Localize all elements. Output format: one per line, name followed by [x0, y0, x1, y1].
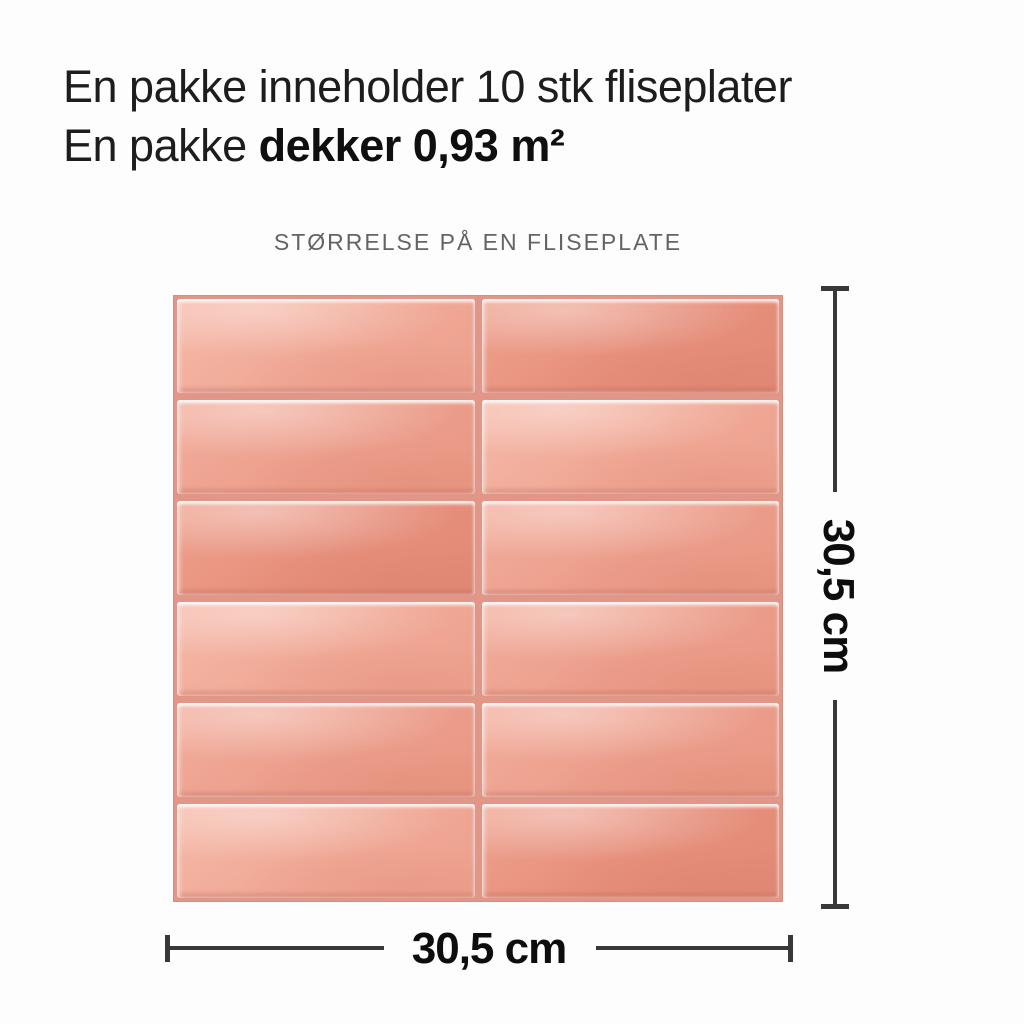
height-dimension-label: 30,5 cm: [813, 519, 863, 673]
heading-line-1: En pakke inneholder 10 stk fliseplater: [63, 57, 792, 116]
tile: [482, 602, 780, 696]
heading-line-2: En pakke dekker 0,93 m²: [63, 116, 792, 175]
heading-line-2-bold: dekker 0,93 m²: [259, 120, 565, 171]
tile-panel: [173, 295, 783, 902]
tile: [177, 299, 475, 393]
tile: [177, 400, 475, 494]
tile: [177, 703, 475, 797]
product-infographic: En pakke inneholder 10 stk fliseplater E…: [0, 0, 1024, 1024]
tile: [482, 299, 780, 393]
width-dimension-label: 30,5 cm: [412, 924, 566, 974]
heading: En pakke inneholder 10 stk fliseplater E…: [63, 57, 792, 175]
heading-line-2-regular: En pakke: [63, 120, 259, 171]
vertical-dimension-line-lower: [833, 700, 837, 906]
tile: [177, 501, 475, 595]
horizontal-dimension-right-cap: [788, 935, 793, 962]
tile: [482, 703, 780, 797]
tile: [482, 501, 780, 595]
horizontal-dimension-line-left: [168, 946, 384, 950]
tile: [177, 602, 475, 696]
tile: [482, 804, 780, 898]
diagram-caption: STØRRELSE PÅ EN FLISEPLATE: [173, 229, 783, 256]
vertical-dimension-bottom-cap: [821, 904, 849, 909]
vertical-dimension-line-upper: [833, 288, 837, 492]
horizontal-dimension-line-right: [596, 946, 790, 950]
tile: [482, 400, 780, 494]
tile: [177, 804, 475, 898]
